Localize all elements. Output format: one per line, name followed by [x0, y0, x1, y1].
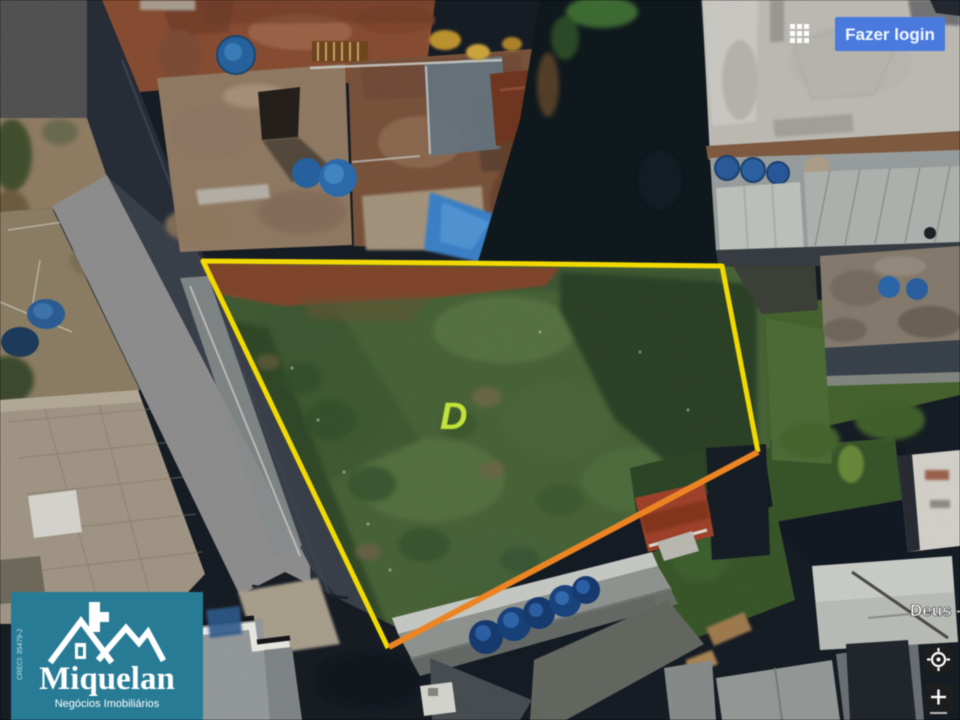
svg-text:Fazer login: Fazer login: [845, 25, 935, 44]
svg-text:CRECI: 35479-J: CRECI: 35479-J: [17, 629, 24, 680]
svg-text:Deus -: Deus -: [910, 601, 960, 620]
svg-text:Negócios Imobiliários: Negócios Imobiliários: [55, 698, 160, 710]
svg-text:Miquelan: Miquelan: [39, 661, 175, 697]
svg-text:D: D: [440, 396, 467, 438]
